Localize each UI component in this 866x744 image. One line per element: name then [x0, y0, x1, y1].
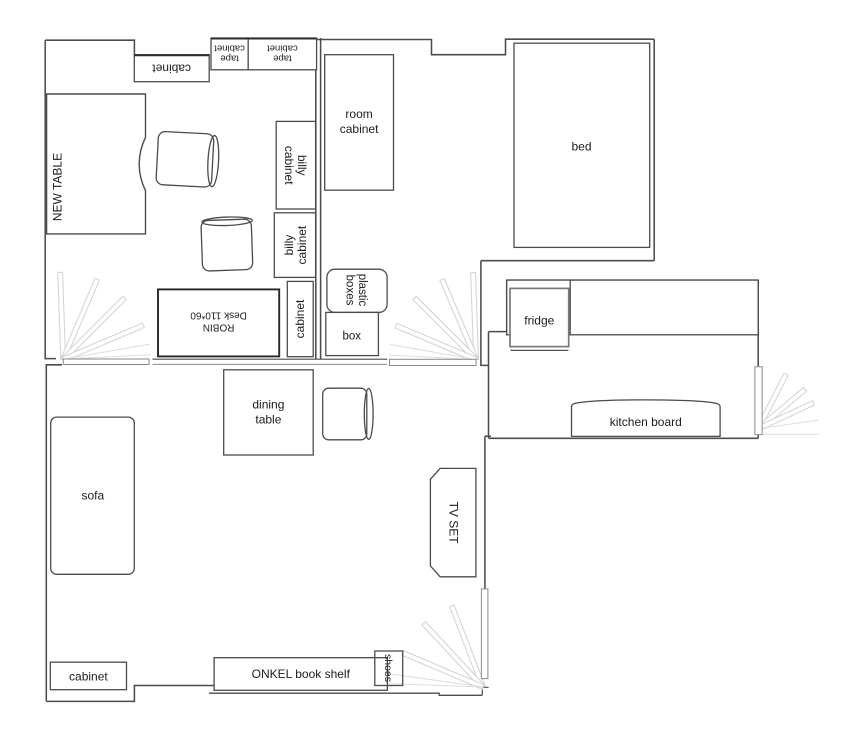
svg-text:ONKEL book shelf: ONKEL book shelf [252, 667, 351, 681]
svg-text:cabinet: cabinet [293, 299, 307, 338]
svg-text:box: box [343, 331, 362, 343]
svg-text:NEW TABLE: NEW TABLE [51, 153, 65, 221]
svg-text:plasticboxes: plasticboxes [344, 274, 369, 307]
svg-text:diningtable: diningtable [252, 398, 284, 427]
svg-text:fridge: fridge [524, 314, 554, 328]
svg-text:sofa: sofa [81, 489, 104, 503]
svg-text:kitchen board: kitchen board [610, 415, 682, 429]
svg-text:cabinet: cabinet [69, 669, 108, 683]
svg-text:bed: bed [571, 139, 591, 153]
svg-text:shoes: shoes [382, 654, 394, 682]
svg-text:cabinet: cabinet [152, 61, 191, 75]
svg-text:TV SET: TV SET [446, 502, 460, 545]
